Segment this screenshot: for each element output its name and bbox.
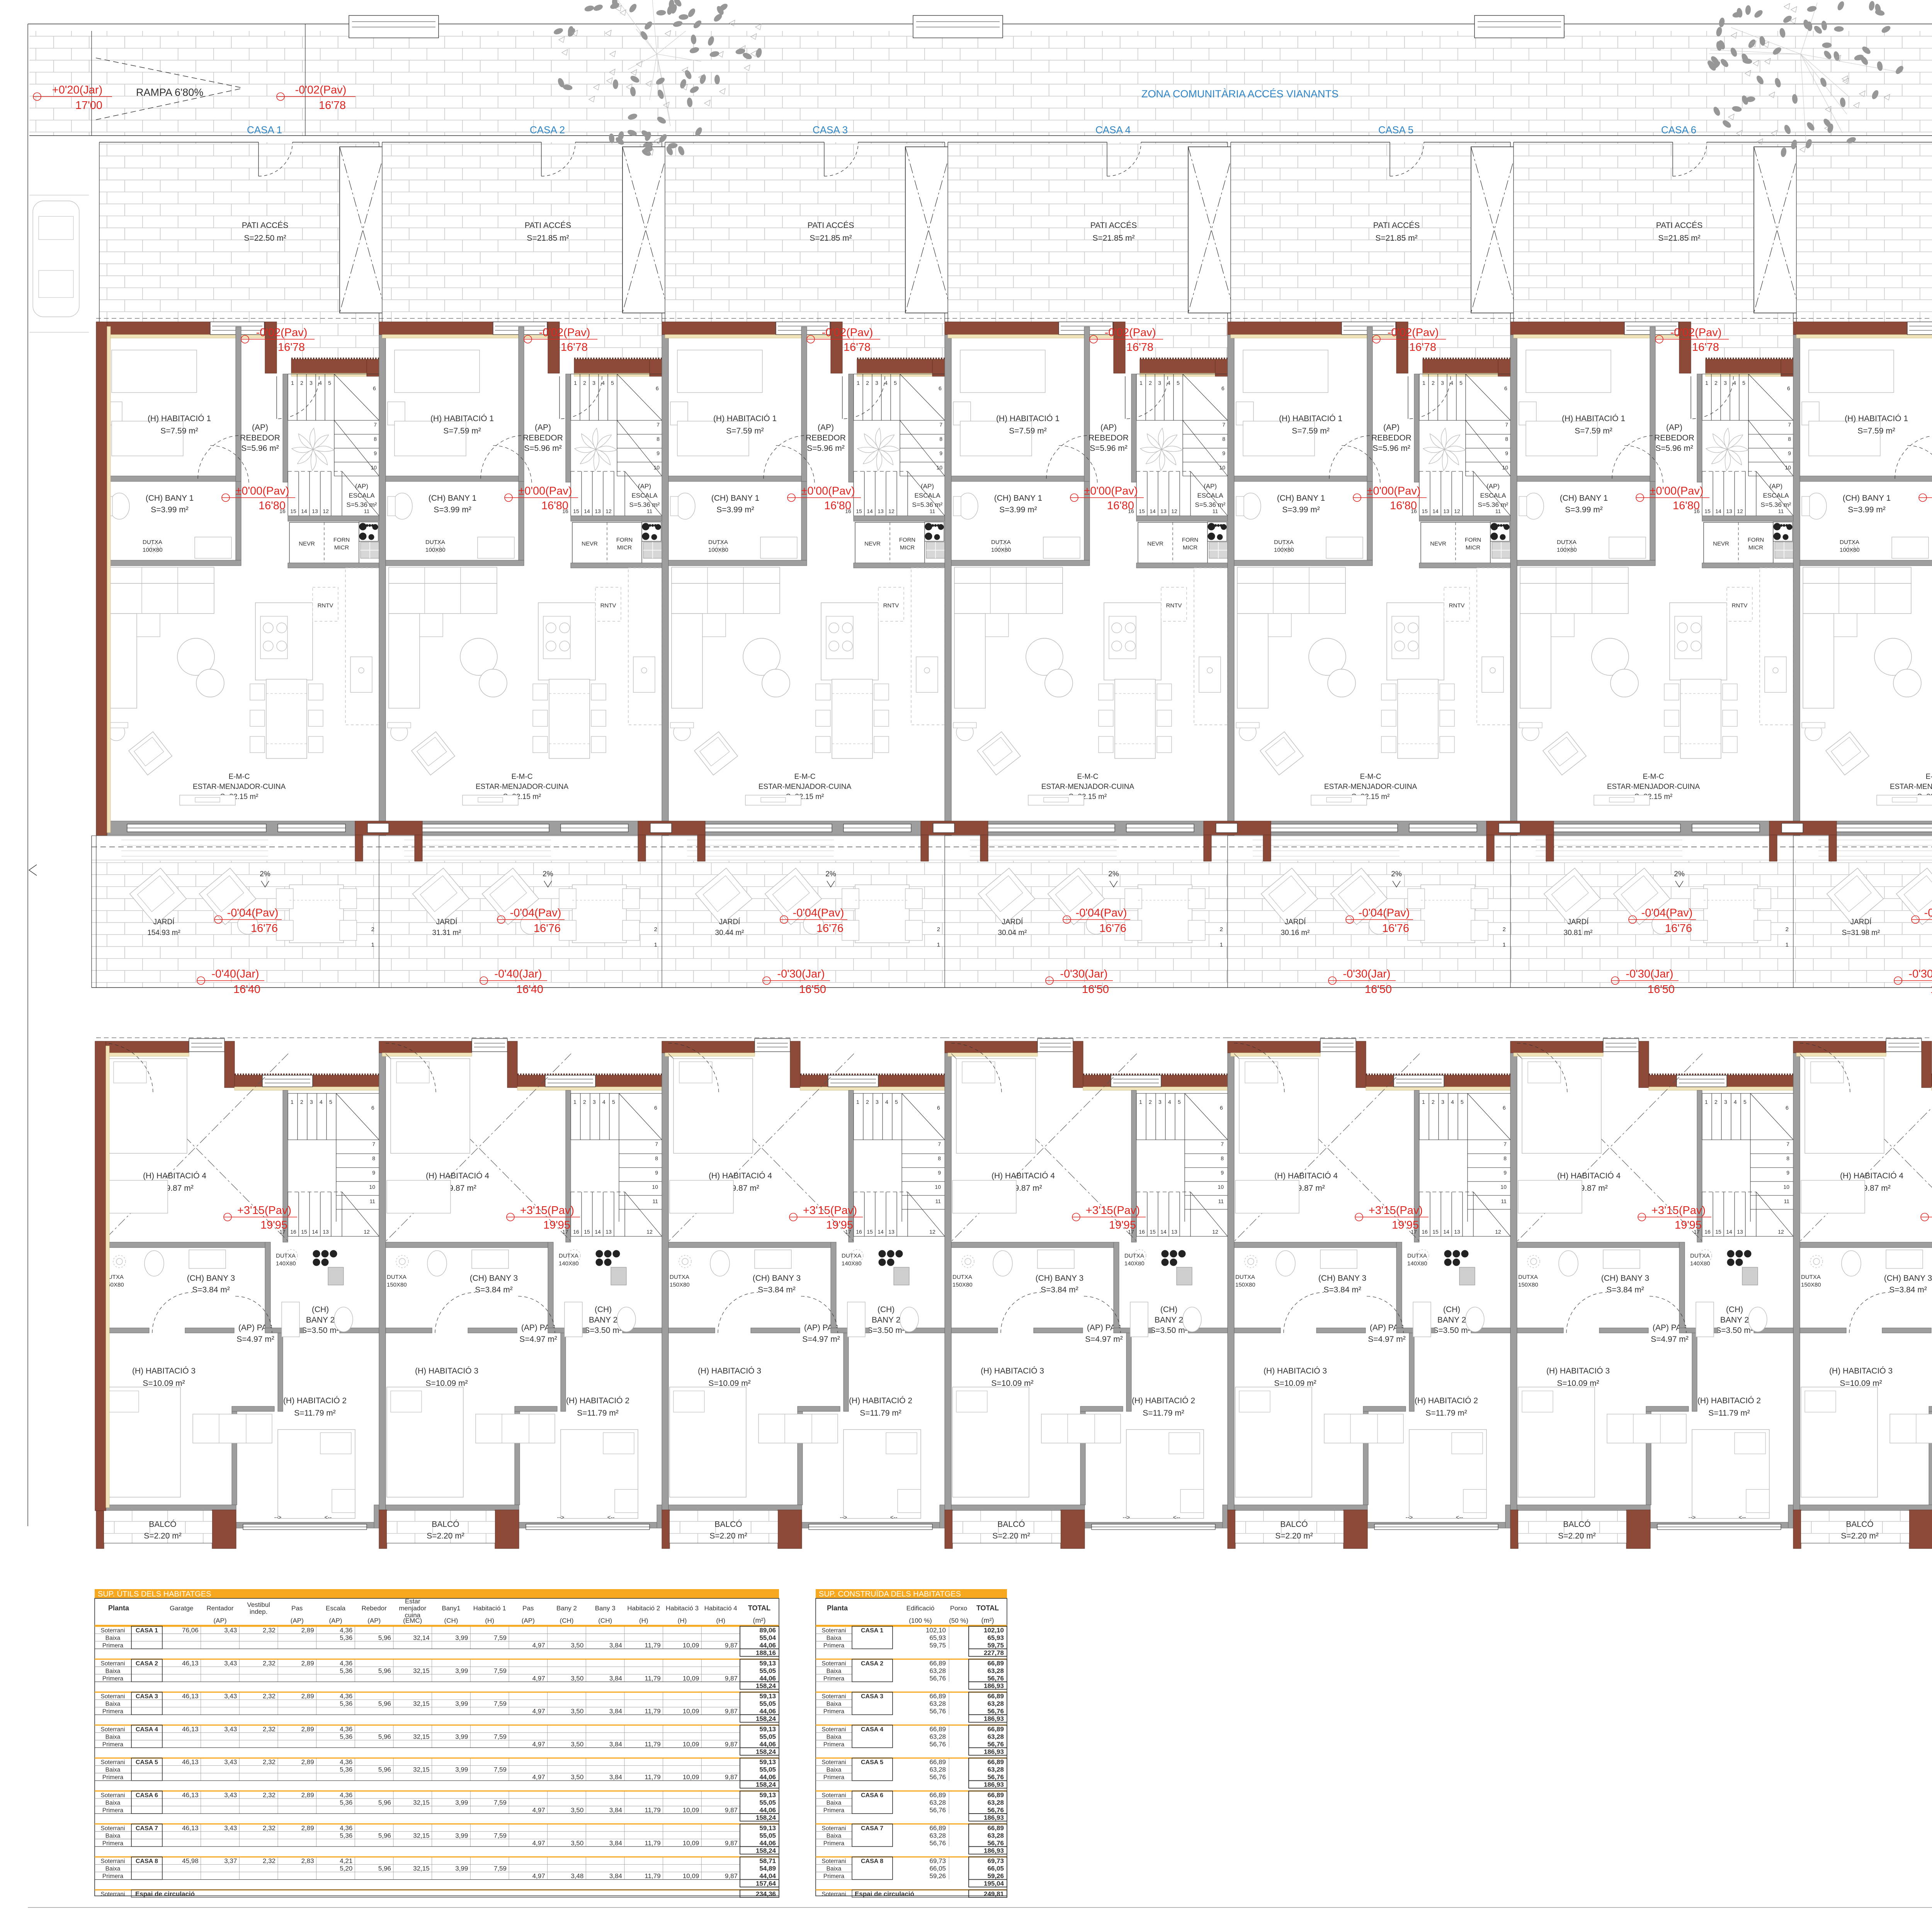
svg-text:-0'30(Jar): -0'30(Jar) <box>1908 968 1932 980</box>
svg-text:32,15: 32,15 <box>413 1799 430 1806</box>
svg-text:Primera: Primera <box>823 1807 845 1814</box>
svg-text:9,87: 9,87 <box>725 1642 738 1649</box>
svg-text:Primera: Primera <box>102 1807 124 1814</box>
svg-text:Baixa: Baixa <box>105 1668 121 1674</box>
svg-text:(m²): (m²) <box>981 1617 994 1624</box>
svg-text:Planta: Planta <box>827 1604 848 1612</box>
svg-text:3,43: 3,43 <box>224 1792 237 1799</box>
svg-text:3,37: 3,37 <box>224 1857 237 1865</box>
svg-text:59,13: 59,13 <box>759 1693 776 1700</box>
svg-text:44,06: 44,06 <box>759 1773 776 1781</box>
svg-text:66,89: 66,89 <box>929 1792 946 1799</box>
svg-text:Pas: Pas <box>522 1605 534 1612</box>
svg-text:69,73: 69,73 <box>929 1857 946 1865</box>
svg-text:Bany1: Bany1 <box>442 1605 460 1612</box>
svg-text:Primera: Primera <box>823 1741 845 1748</box>
svg-text:menjador: menjador <box>399 1605 426 1612</box>
svg-text:11,79: 11,79 <box>645 1773 660 1781</box>
svg-text:Baixa: Baixa <box>105 1800 121 1806</box>
svg-text:16'76: 16'76 <box>1665 922 1692 935</box>
svg-text:Primera: Primera <box>102 1708 124 1715</box>
svg-text:63,28: 63,28 <box>929 1667 946 1674</box>
svg-text:-0'30(Jar): -0'30(Jar) <box>1626 968 1673 980</box>
svg-text:5,96: 5,96 <box>378 1865 391 1872</box>
svg-text:Primera: Primera <box>823 1642 845 1649</box>
svg-text:30.04 m²: 30.04 m² <box>998 929 1027 937</box>
svg-text:CASA 1: CASA 1 <box>247 124 282 136</box>
svg-text:16'50: 16'50 <box>1648 983 1675 996</box>
svg-text:4,36: 4,36 <box>340 1659 352 1667</box>
svg-text:3,50: 3,50 <box>571 1674 583 1682</box>
svg-text:89,06: 89,06 <box>759 1627 776 1634</box>
svg-text:10,09: 10,09 <box>683 1773 699 1781</box>
svg-text:CASA 2: CASA 2 <box>136 1660 158 1667</box>
svg-text:4,97: 4,97 <box>532 1741 545 1748</box>
svg-text:Baixa: Baixa <box>827 1635 842 1642</box>
svg-text:Soterrani: Soterrani <box>822 1693 846 1700</box>
svg-text:5,36: 5,36 <box>340 1799 352 1806</box>
svg-text:56,76: 56,76 <box>929 1674 946 1682</box>
svg-text:JARDÍ: JARDÍ <box>719 918 741 926</box>
svg-text:9,87: 9,87 <box>725 1674 738 1682</box>
svg-text:4,36: 4,36 <box>340 1792 352 1799</box>
svg-text:Baixa: Baixa <box>827 1767 842 1773</box>
svg-text:Soterrani: Soterrani <box>101 1660 125 1667</box>
svg-text:11,79: 11,79 <box>645 1807 660 1814</box>
svg-text:63,28: 63,28 <box>987 1766 1004 1773</box>
svg-text:55,05: 55,05 <box>759 1832 776 1839</box>
svg-text:63,28: 63,28 <box>929 1700 946 1707</box>
svg-text:16'40: 16'40 <box>516 983 543 996</box>
svg-text:16'76: 16'76 <box>1382 922 1409 935</box>
svg-text:SUP. ÚTILS DELS HABITATGES: SUP. ÚTILS DELS HABITATGES <box>98 1589 211 1598</box>
svg-text:(H): (H) <box>716 1617 725 1624</box>
svg-text:Baixa: Baixa <box>827 1734 842 1740</box>
svg-text:2,89: 2,89 <box>301 1693 314 1700</box>
svg-text:65,93: 65,93 <box>929 1634 946 1642</box>
svg-text:10,09: 10,09 <box>683 1708 699 1715</box>
svg-text:66,89: 66,89 <box>987 1758 1004 1766</box>
svg-text:66,89: 66,89 <box>987 1659 1004 1667</box>
svg-text:Soterrani: Soterrani <box>101 1627 125 1634</box>
svg-text:(H): (H) <box>678 1617 687 1624</box>
svg-text:55,05: 55,05 <box>759 1766 776 1773</box>
svg-text:-0'40(Jar): -0'40(Jar) <box>494 968 542 980</box>
svg-text:JARDÍ: JARDÍ <box>1850 918 1872 926</box>
svg-text:4,36: 4,36 <box>340 1627 352 1634</box>
svg-text:63,28: 63,28 <box>987 1733 1004 1740</box>
svg-text:63,28: 63,28 <box>929 1766 946 1773</box>
svg-text:4,36: 4,36 <box>340 1725 352 1733</box>
svg-text:59,75: 59,75 <box>987 1642 1004 1649</box>
svg-text:Primera: Primera <box>823 1873 845 1880</box>
svg-text:2,83: 2,83 <box>301 1857 314 1865</box>
svg-text:PATI ACCÉS: PATI ACCÉS <box>1373 221 1420 230</box>
svg-text:CASA 3: CASA 3 <box>136 1693 158 1700</box>
svg-text:66,89: 66,89 <box>987 1824 1004 1832</box>
svg-text:46,13: 46,13 <box>182 1693 199 1700</box>
svg-text:56,76: 56,76 <box>987 1708 1004 1715</box>
svg-text:JARDÍ: JARDÍ <box>153 918 175 926</box>
svg-text:186,93: 186,93 <box>984 1847 1004 1854</box>
svg-text:3,99: 3,99 <box>455 1634 468 1642</box>
svg-text:3,99: 3,99 <box>455 1766 468 1773</box>
svg-text:2,89: 2,89 <box>301 1792 314 1799</box>
svg-text:56,76: 56,76 <box>929 1708 946 1715</box>
svg-text:186,93: 186,93 <box>984 1814 1004 1821</box>
svg-text:(CH): (CH) <box>560 1617 574 1624</box>
svg-text:CASA 6: CASA 6 <box>136 1792 158 1799</box>
svg-text:186,93: 186,93 <box>984 1682 1004 1690</box>
svg-text:66,89: 66,89 <box>929 1659 946 1667</box>
svg-text:-0'04(Pav): -0'04(Pav) <box>1359 907 1410 919</box>
svg-text:46,13: 46,13 <box>182 1824 199 1832</box>
svg-text:11,79: 11,79 <box>645 1872 660 1880</box>
svg-text:PATI ACCÉS: PATI ACCÉS <box>1090 221 1137 230</box>
svg-text:CASA 4: CASA 4 <box>1095 124 1131 136</box>
svg-text:3,99: 3,99 <box>455 1733 468 1740</box>
svg-text:56,76: 56,76 <box>987 1839 1004 1847</box>
svg-text:3,84: 3,84 <box>609 1642 622 1649</box>
svg-text:Primera: Primera <box>102 1675 124 1682</box>
svg-text:3,48: 3,48 <box>571 1872 583 1880</box>
svg-text:3,43: 3,43 <box>224 1659 237 1667</box>
svg-text:Baixa: Baixa <box>827 1800 842 1806</box>
svg-text:Soterrani: Soterrani <box>822 1858 846 1865</box>
svg-text:11,79: 11,79 <box>645 1708 660 1715</box>
svg-text:Soterrani: Soterrani <box>822 1627 846 1634</box>
svg-text:56,76: 56,76 <box>929 1807 946 1814</box>
svg-text:3,84: 3,84 <box>609 1674 622 1682</box>
svg-text:5,36: 5,36 <box>340 1733 352 1740</box>
svg-text:3,99: 3,99 <box>455 1865 468 1872</box>
svg-text:5,36: 5,36 <box>340 1634 352 1642</box>
svg-text:indep.: indep. <box>250 1608 267 1615</box>
svg-text:63,28: 63,28 <box>987 1700 1004 1707</box>
svg-text:5,96: 5,96 <box>378 1733 391 1740</box>
svg-text:4,36: 4,36 <box>340 1693 352 1700</box>
svg-text:158,24: 158,24 <box>756 1847 776 1854</box>
svg-text:Soterrani: Soterrani <box>101 1891 125 1897</box>
svg-text:1: 1 <box>1786 942 1789 948</box>
svg-text:3,50: 3,50 <box>571 1708 583 1715</box>
svg-text:2: 2 <box>1503 926 1506 933</box>
svg-text:3,84: 3,84 <box>609 1741 622 1748</box>
svg-text:16'78: 16'78 <box>319 99 346 112</box>
svg-text:-0'30(Jar): -0'30(Jar) <box>777 968 825 980</box>
svg-text:59,26: 59,26 <box>929 1872 946 1880</box>
svg-text:44,06: 44,06 <box>759 1839 776 1847</box>
svg-text:11,79: 11,79 <box>645 1642 660 1649</box>
svg-text:Edificació: Edificació <box>906 1605 935 1612</box>
svg-text:55,05: 55,05 <box>759 1799 776 1806</box>
svg-text:CASA 5: CASA 5 <box>136 1759 158 1766</box>
svg-text:Estar: Estar <box>405 1598 420 1605</box>
svg-text:Primera: Primera <box>102 1741 124 1748</box>
svg-text:2,32: 2,32 <box>263 1659 276 1667</box>
svg-text:Garatge: Garatge <box>170 1605 193 1612</box>
svg-text:Habitació 2: Habitació 2 <box>627 1605 660 1612</box>
svg-text:7,59: 7,59 <box>494 1667 507 1674</box>
svg-text:186,93: 186,93 <box>984 1715 1004 1722</box>
svg-text:CASA 8: CASA 8 <box>861 1858 883 1865</box>
svg-text:59,26: 59,26 <box>987 1872 1004 1880</box>
svg-text:66,05: 66,05 <box>987 1865 1004 1872</box>
svg-text:59,13: 59,13 <box>759 1725 776 1733</box>
svg-text:Soterrani: Soterrani <box>822 1792 846 1799</box>
svg-text:JARDÍ: JARDÍ <box>1002 918 1024 926</box>
svg-text:56,76: 56,76 <box>987 1741 1004 1748</box>
svg-text:(100 %): (100 %) <box>909 1617 932 1624</box>
svg-text:Primera: Primera <box>102 1873 124 1880</box>
svg-text:56,76: 56,76 <box>987 1807 1004 1814</box>
svg-text:Baixa: Baixa <box>105 1734 121 1740</box>
svg-text:158,24: 158,24 <box>756 1781 776 1788</box>
svg-text:-0'02(Pav): -0'02(Pav) <box>295 84 347 96</box>
svg-text:Baixa: Baixa <box>105 1635 121 1642</box>
svg-text:7,59: 7,59 <box>494 1700 507 1707</box>
svg-text:Primera: Primera <box>102 1840 124 1847</box>
svg-text:3,99: 3,99 <box>455 1799 468 1806</box>
svg-text:154.93 m²: 154.93 m² <box>147 929 180 937</box>
svg-text:5,36: 5,36 <box>340 1667 352 1674</box>
svg-text:3,50: 3,50 <box>571 1741 583 1748</box>
svg-text:3,84: 3,84 <box>609 1708 622 1715</box>
svg-text:5,20: 5,20 <box>340 1865 352 1872</box>
svg-text:44,04: 44,04 <box>759 1872 776 1880</box>
svg-text:Baixa: Baixa <box>105 1866 121 1872</box>
svg-text:Planta: Planta <box>108 1604 129 1612</box>
svg-text:3,43: 3,43 <box>224 1693 237 1700</box>
svg-text:195,04: 195,04 <box>984 1880 1004 1887</box>
svg-text:Primera: Primera <box>823 1708 845 1715</box>
svg-text:9,87: 9,87 <box>725 1872 738 1880</box>
svg-text:7,59: 7,59 <box>494 1634 507 1642</box>
svg-text:158,24: 158,24 <box>756 1814 776 1821</box>
svg-text:32,15: 32,15 <box>413 1832 430 1839</box>
svg-text:11,79: 11,79 <box>645 1741 660 1748</box>
svg-text:5,96: 5,96 <box>378 1667 391 1674</box>
svg-text:63,28: 63,28 <box>929 1799 946 1806</box>
svg-text:CASA 3: CASA 3 <box>813 124 848 136</box>
svg-text:4,97: 4,97 <box>532 1708 545 1715</box>
svg-text:234,36: 234,36 <box>756 1890 776 1897</box>
svg-text:56,76: 56,76 <box>987 1674 1004 1682</box>
svg-text:16'50: 16'50 <box>1365 983 1392 996</box>
svg-text:Porxo: Porxo <box>950 1605 967 1612</box>
svg-text:Soterrani: Soterrani <box>101 1726 125 1733</box>
svg-text:1: 1 <box>1503 942 1506 948</box>
svg-text:ZONA COMUNITÀRIA ACCÉS VIANANT: ZONA COMUNITÀRIA ACCÉS VIANANTS <box>1141 88 1338 100</box>
svg-text:Soterrani: Soterrani <box>101 1693 125 1700</box>
svg-text:Pas: Pas <box>291 1605 303 1612</box>
svg-text:16'50: 16'50 <box>1930 983 1932 996</box>
svg-text:CASA 5: CASA 5 <box>861 1759 883 1766</box>
svg-text:59,13: 59,13 <box>759 1659 776 1667</box>
svg-text:54,89: 54,89 <box>759 1865 776 1872</box>
svg-text:CASA 7: CASA 7 <box>136 1825 158 1832</box>
svg-text:TOTAL: TOTAL <box>976 1604 999 1612</box>
svg-text:S=21.85 m²: S=21.85 m² <box>527 234 569 243</box>
svg-text:65,93: 65,93 <box>987 1634 1004 1642</box>
svg-text:2: 2 <box>371 926 374 933</box>
svg-text:9,87: 9,87 <box>725 1807 738 1814</box>
svg-text:46,13: 46,13 <box>182 1659 199 1667</box>
svg-text:7,59: 7,59 <box>494 1799 507 1806</box>
svg-text:10,09: 10,09 <box>683 1872 699 1880</box>
svg-text:2,32: 2,32 <box>263 1857 276 1865</box>
svg-text:2,32: 2,32 <box>263 1725 276 1733</box>
svg-text:JARDÍ: JARDÍ <box>1568 918 1589 926</box>
svg-text:4,36: 4,36 <box>340 1824 352 1832</box>
svg-text:CASA 1: CASA 1 <box>136 1627 158 1634</box>
svg-text:66,89: 66,89 <box>987 1792 1004 1799</box>
svg-text:2,32: 2,32 <box>263 1693 276 1700</box>
svg-text:PATI ACCÉS: PATI ACCÉS <box>525 221 571 230</box>
svg-text:2,32: 2,32 <box>263 1792 276 1799</box>
svg-text:11,79: 11,79 <box>645 1674 660 1682</box>
svg-text:Bany 2: Bany 2 <box>556 1605 577 1612</box>
svg-text:Baixa: Baixa <box>827 1701 842 1707</box>
svg-text:PATI ACCÉS: PATI ACCÉS <box>242 221 289 230</box>
svg-text:CASA 4: CASA 4 <box>136 1726 158 1733</box>
svg-text:30.16 m²: 30.16 m² <box>1281 929 1310 937</box>
svg-text:3,43: 3,43 <box>224 1725 237 1733</box>
svg-text:157,64: 157,64 <box>756 1880 776 1887</box>
svg-text:66,89: 66,89 <box>929 1725 946 1733</box>
svg-text:(m²): (m²) <box>753 1617 766 1624</box>
svg-text:CASA 6: CASA 6 <box>1661 124 1696 136</box>
svg-text:56,76: 56,76 <box>987 1773 1004 1781</box>
svg-text:3,84: 3,84 <box>609 1807 622 1814</box>
svg-text:5,96: 5,96 <box>378 1700 391 1707</box>
svg-text:56,76: 56,76 <box>929 1741 946 1748</box>
svg-text:CASA 1: CASA 1 <box>861 1627 883 1634</box>
svg-text:44,06: 44,06 <box>759 1708 776 1715</box>
svg-text:Espai de circulació: Espai de circulació <box>855 1890 914 1897</box>
svg-text:Primera: Primera <box>102 1774 124 1781</box>
svg-text:30.81 m²: 30.81 m² <box>1564 929 1593 937</box>
svg-text:10,09: 10,09 <box>683 1741 699 1748</box>
svg-text:3,84: 3,84 <box>609 1872 622 1880</box>
svg-text:188,16: 188,16 <box>756 1649 776 1657</box>
svg-text:4,97: 4,97 <box>532 1807 545 1814</box>
svg-text:4,97: 4,97 <box>532 1839 545 1847</box>
svg-text:1: 1 <box>1220 942 1223 948</box>
svg-text:59,13: 59,13 <box>759 1824 776 1832</box>
svg-text:(AP): (AP) <box>367 1617 381 1624</box>
svg-text:3,50: 3,50 <box>571 1773 583 1781</box>
svg-text:CASA 2: CASA 2 <box>530 124 565 136</box>
svg-text:CASA 7: CASA 7 <box>861 1825 883 1832</box>
svg-text:CASA 5: CASA 5 <box>1378 124 1413 136</box>
svg-text:5,96: 5,96 <box>378 1766 391 1773</box>
svg-text:CASA 6: CASA 6 <box>861 1792 883 1799</box>
svg-text:(AP): (AP) <box>214 1617 227 1624</box>
svg-text:186,93: 186,93 <box>984 1748 1004 1755</box>
svg-text:9,87: 9,87 <box>725 1839 738 1847</box>
svg-text:S=31.98 m²: S=31.98 m² <box>1842 929 1880 937</box>
svg-text:16'40: 16'40 <box>233 983 260 996</box>
svg-text:32,15: 32,15 <box>413 1865 430 1872</box>
svg-text:16'76: 16'76 <box>1099 922 1126 935</box>
svg-text:-0'04(Pav): -0'04(Pav) <box>1924 907 1932 919</box>
svg-text:66,05: 66,05 <box>929 1865 946 1872</box>
svg-text:55,05: 55,05 <box>759 1733 776 1740</box>
svg-text:2,32: 2,32 <box>263 1758 276 1766</box>
svg-text:44,06: 44,06 <box>759 1741 776 1748</box>
svg-text:158,24: 158,24 <box>756 1682 776 1690</box>
svg-text:66,89: 66,89 <box>929 1758 946 1766</box>
svg-text:(EMC): (EMC) <box>403 1617 422 1624</box>
svg-text:55,05: 55,05 <box>759 1700 776 1707</box>
svg-text:4,36: 4,36 <box>340 1758 352 1766</box>
svg-text:7,59: 7,59 <box>494 1733 507 1740</box>
svg-text:3,43: 3,43 <box>224 1758 237 1766</box>
svg-text:76,06: 76,06 <box>182 1627 199 1634</box>
svg-text:63,28: 63,28 <box>929 1733 946 1740</box>
svg-text:1: 1 <box>937 942 940 948</box>
svg-text:Rebedor: Rebedor <box>362 1605 387 1612</box>
svg-text:Soterrani: Soterrani <box>822 1726 846 1733</box>
svg-text:2,89: 2,89 <box>301 1627 314 1634</box>
svg-text:102,10: 102,10 <box>926 1627 946 1634</box>
svg-text:55,05: 55,05 <box>759 1667 776 1674</box>
svg-text:9,87: 9,87 <box>725 1773 738 1781</box>
svg-text:63,28: 63,28 <box>987 1667 1004 1674</box>
svg-text:32,15: 32,15 <box>413 1766 430 1773</box>
svg-text:4,97: 4,97 <box>532 1773 545 1781</box>
svg-text:2: 2 <box>654 926 657 933</box>
svg-text:1: 1 <box>654 942 657 948</box>
svg-text:Soterrani: Soterrani <box>822 1891 846 1897</box>
svg-text:4,97: 4,97 <box>532 1642 545 1649</box>
svg-text:7,59: 7,59 <box>494 1865 507 1872</box>
svg-text:32,14: 32,14 <box>413 1634 430 1642</box>
svg-text:Escala: Escala <box>326 1605 346 1612</box>
svg-text:46,13: 46,13 <box>182 1725 199 1733</box>
svg-text:10,09: 10,09 <box>683 1642 699 1649</box>
svg-text:63,28: 63,28 <box>929 1832 946 1839</box>
svg-text:2,89: 2,89 <box>301 1725 314 1733</box>
svg-text:Soterrani: Soterrani <box>822 1825 846 1832</box>
svg-text:9,87: 9,87 <box>725 1741 738 1748</box>
svg-text:Baixa: Baixa <box>105 1767 121 1773</box>
svg-text:S=22.50 m²: S=22.50 m² <box>244 234 286 243</box>
svg-text:186,93: 186,93 <box>984 1781 1004 1788</box>
svg-text:Habitació 3: Habitació 3 <box>666 1605 699 1612</box>
svg-text:5,36: 5,36 <box>340 1766 352 1773</box>
svg-text:56,76: 56,76 <box>929 1839 946 1847</box>
svg-text:7,59: 7,59 <box>494 1766 507 1773</box>
svg-text:(AP): (AP) <box>522 1617 535 1624</box>
svg-text:44,06: 44,06 <box>759 1642 776 1649</box>
svg-text:Soterrani: Soterrani <box>822 1660 846 1667</box>
svg-text:CASA 2: CASA 2 <box>861 1660 883 1667</box>
svg-text:16'76: 16'76 <box>816 922 844 935</box>
svg-text:(H): (H) <box>485 1617 494 1624</box>
svg-text:3,50: 3,50 <box>571 1807 583 1814</box>
svg-text:Primera: Primera <box>823 1840 845 1847</box>
svg-text:10,09: 10,09 <box>683 1839 699 1847</box>
svg-text:(H): (H) <box>639 1617 648 1624</box>
svg-text:66,89: 66,89 <box>929 1824 946 1832</box>
svg-text:PATI ACCÉS: PATI ACCÉS <box>1656 221 1703 230</box>
svg-text:CASA 8: CASA 8 <box>136 1858 158 1865</box>
svg-text:-0'04(Pav): -0'04(Pav) <box>793 907 844 919</box>
svg-text:5,96: 5,96 <box>378 1634 391 1642</box>
svg-text:1: 1 <box>371 942 374 948</box>
